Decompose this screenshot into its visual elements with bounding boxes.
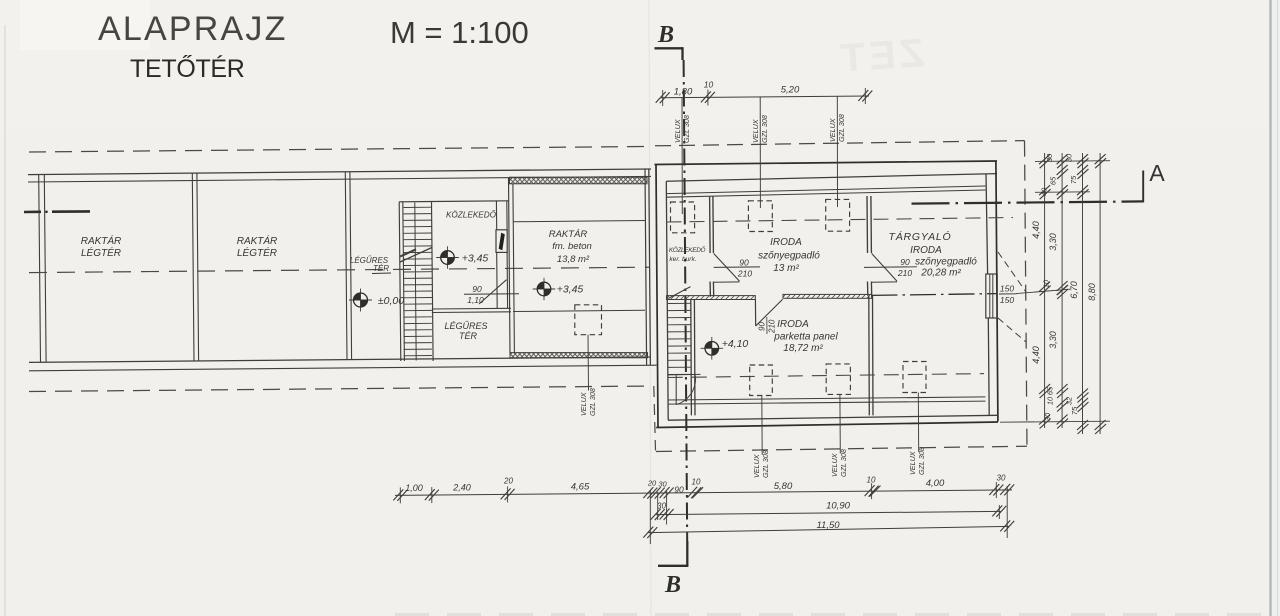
svg-text:30: 30	[1045, 153, 1054, 162]
svg-text:RAKTÁR: RAKTÁR	[549, 229, 588, 240]
svg-text:65: 65	[1046, 386, 1055, 395]
svg-text:GZL 308: GZL 308	[682, 115, 691, 143]
svg-text:30: 30	[658, 480, 667, 489]
svg-text:32: 32	[1065, 396, 1074, 405]
svg-text:TETŐTÉR: TETŐTÉR	[130, 54, 245, 83]
svg-text:GZL 308: GZL 308	[839, 449, 848, 477]
svg-text:VELUX: VELUX	[908, 450, 917, 475]
svg-text:TÉR: TÉR	[373, 264, 389, 273]
svg-text:10: 10	[704, 80, 714, 90]
svg-text:+3,45: +3,45	[557, 284, 584, 296]
svg-text:90: 90	[739, 257, 749, 267]
svg-text:18,72 m²: 18,72 m²	[783, 343, 823, 354]
svg-text:IRODA: IRODA	[910, 245, 942, 256]
svg-text:M = 1:100: M = 1:100	[390, 15, 529, 50]
svg-text:90: 90	[900, 257, 910, 267]
svg-text:GZL 308: GZL 308	[917, 447, 926, 475]
svg-text:A: A	[1149, 160, 1165, 186]
svg-text:30: 30	[997, 474, 1006, 483]
svg-text:IRODA: IRODA	[770, 237, 802, 248]
svg-text:GZL 308: GZL 308	[588, 388, 597, 416]
svg-text:RAKTÁR: RAKTÁR	[81, 234, 122, 247]
svg-text:IRODA: IRODA	[777, 319, 809, 330]
svg-text:LÉGTÉR: LÉGTÉR	[81, 246, 121, 259]
svg-text:10: 10	[867, 476, 876, 485]
svg-text:LÉGTÉR: LÉGTÉR	[237, 246, 277, 259]
svg-text:VELUX: VELUX	[752, 453, 761, 478]
svg-text:B: B	[664, 572, 681, 598]
svg-text:VELUX: VELUX	[579, 391, 588, 416]
svg-text:ALAPRAJZ: ALAPRAJZ	[98, 10, 288, 48]
svg-text:GZL 308: GZL 308	[837, 114, 846, 142]
svg-text:11,50: 11,50	[816, 520, 840, 531]
svg-text:GZL 308: GZL 308	[761, 450, 770, 478]
svg-text:+4,10: +4,10	[722, 338, 749, 350]
svg-text:8,80: 8,80	[1087, 283, 1097, 301]
svg-text:4,00: 4,00	[926, 478, 945, 489]
svg-text:4,40: 4,40	[1031, 221, 1041, 239]
svg-text:5,80: 5,80	[774, 481, 793, 492]
svg-text:TÉR: TÉR	[459, 331, 478, 341]
svg-text:3,30: 3,30	[1048, 233, 1058, 251]
svg-text:szőnyegpadló: szőnyegpadló	[915, 257, 977, 268]
svg-text:parketta panel: parketta panel	[773, 332, 838, 343]
svg-text:210: 210	[737, 269, 752, 279]
svg-text:30: 30	[657, 502, 666, 511]
svg-text:szőnyegpadló: szőnyegpadló	[758, 251, 820, 262]
svg-text:1,10: 1,10	[467, 295, 484, 305]
svg-text:4,40: 4,40	[1031, 346, 1041, 364]
svg-text:40: 40	[1040, 187, 1049, 196]
svg-text:20,28 m²: 20,28 m²	[920, 268, 961, 279]
svg-text:ZET: ZET	[835, 31, 925, 81]
svg-text:3,30: 3,30	[1048, 331, 1058, 349]
svg-text:13,8 m²: 13,8 m²	[557, 254, 590, 265]
svg-text:90: 90	[472, 284, 482, 294]
svg-text:RAKTÁR: RAKTÁR	[237, 234, 278, 247]
svg-text:90: 90	[758, 322, 767, 331]
svg-text:VELUX: VELUX	[830, 452, 839, 477]
svg-text:1,80: 1,80	[674, 87, 693, 98]
svg-text:VELUX: VELUX	[828, 117, 837, 142]
svg-text:GZL 308: GZL 308	[760, 115, 769, 143]
svg-text:20: 20	[647, 479, 657, 488]
svg-text:fm. beton: fm. beton	[552, 241, 592, 252]
svg-text:KÖZLEKEDŐ: KÖZLEKEDŐ	[669, 245, 706, 254]
svg-text:10: 10	[1042, 279, 1051, 288]
svg-text:+3,45: +3,45	[462, 253, 489, 265]
svg-text:10,90: 10,90	[826, 501, 850, 512]
svg-text:TÁRGYALÓ: TÁRGYALÓ	[888, 230, 951, 243]
svg-text:13 m²: 13 m²	[773, 263, 799, 274]
svg-text:10: 10	[1046, 396, 1055, 405]
svg-text:75: 75	[1069, 175, 1078, 184]
svg-text:4,65: 4,65	[571, 482, 590, 493]
svg-text:5,20: 5,20	[781, 85, 800, 96]
svg-text:150: 150	[1000, 295, 1014, 305]
svg-text:150: 150	[1000, 284, 1014, 294]
svg-text:1,00: 1,00	[405, 483, 423, 493]
svg-text:LÉGŰRES: LÉGŰRES	[444, 321, 487, 331]
svg-text:20: 20	[503, 477, 513, 486]
svg-text:VELUX: VELUX	[751, 118, 760, 143]
svg-text:210: 210	[897, 268, 912, 278]
svg-text:2,40: 2,40	[452, 483, 471, 493]
svg-text:KÖZLEKEDŐ: KÖZLEKEDŐ	[446, 210, 497, 220]
svg-text:10: 10	[692, 478, 701, 487]
svg-text:30: 30	[1043, 412, 1052, 421]
svg-text:B: B	[657, 22, 674, 48]
svg-text:90: 90	[674, 485, 684, 495]
svg-text:VELUX: VELUX	[673, 118, 682, 143]
svg-text:30: 30	[1065, 153, 1074, 162]
svg-text:ker. burk.: ker. burk.	[669, 256, 696, 263]
svg-text:6,70: 6,70	[1069, 281, 1079, 299]
svg-text:75: 75	[1070, 406, 1079, 415]
svg-text:65: 65	[1049, 176, 1058, 185]
